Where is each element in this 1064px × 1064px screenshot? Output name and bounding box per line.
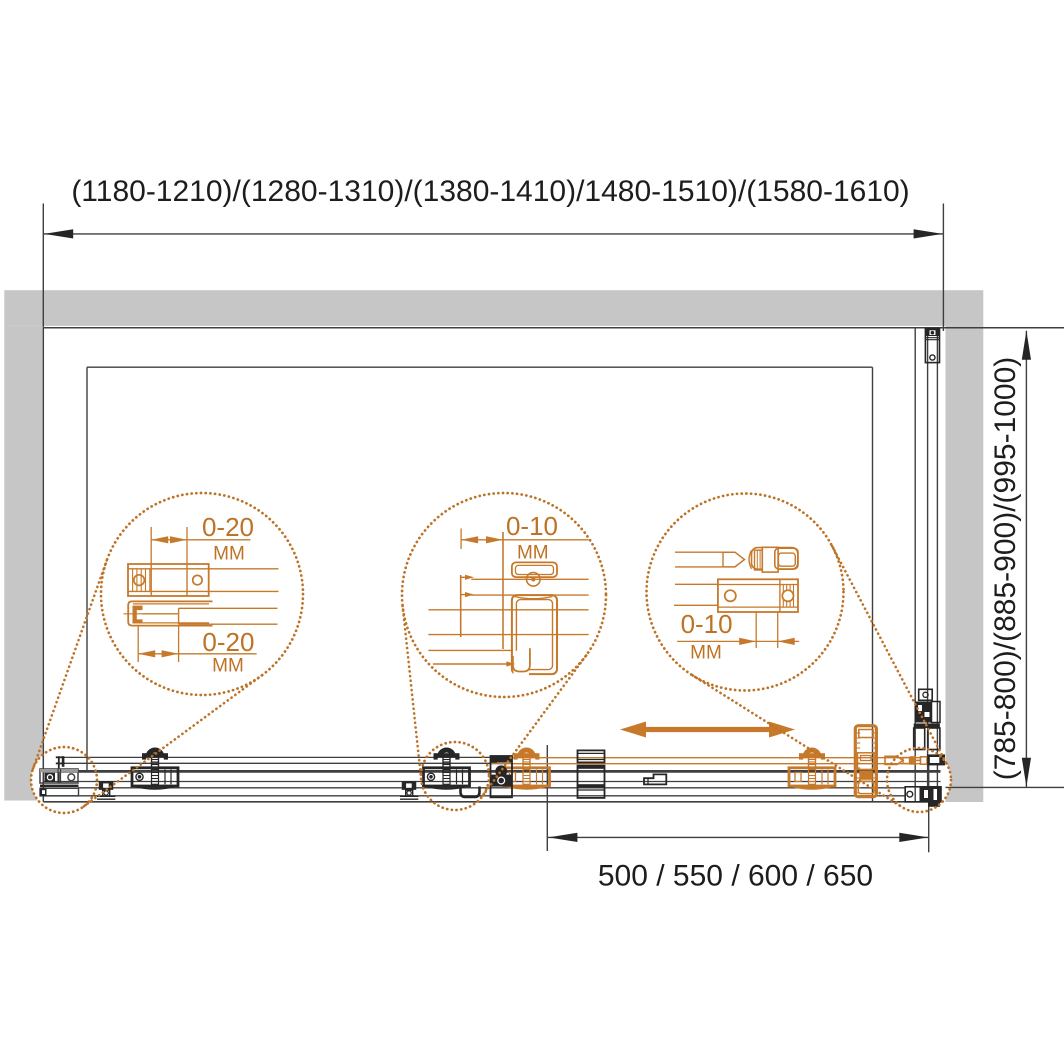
svg-text:500 / 550 / 600 / 650: 500 / 550 / 600 / 650 bbox=[598, 860, 873, 893]
svg-text:0-10: 0-10 bbox=[506, 511, 558, 541]
svg-text:MM: MM bbox=[213, 544, 245, 565]
svg-text:0-10: 0-10 bbox=[681, 609, 733, 639]
svg-text:0-20: 0-20 bbox=[202, 627, 254, 657]
svg-text:0-20: 0-20 bbox=[202, 512, 254, 542]
svg-text:(785-800)/(885-900)/(995-1000): (785-800)/(885-900)/(995-1000) bbox=[989, 357, 1022, 781]
svg-text:(1180-1210)/(1280-1310)/(1380-: (1180-1210)/(1280-1310)/(1380-1410)/1480… bbox=[71, 175, 909, 208]
svg-text:MM: MM bbox=[212, 656, 244, 677]
svg-text:MM: MM bbox=[690, 643, 722, 664]
svg-text:MM: MM bbox=[517, 543, 549, 564]
